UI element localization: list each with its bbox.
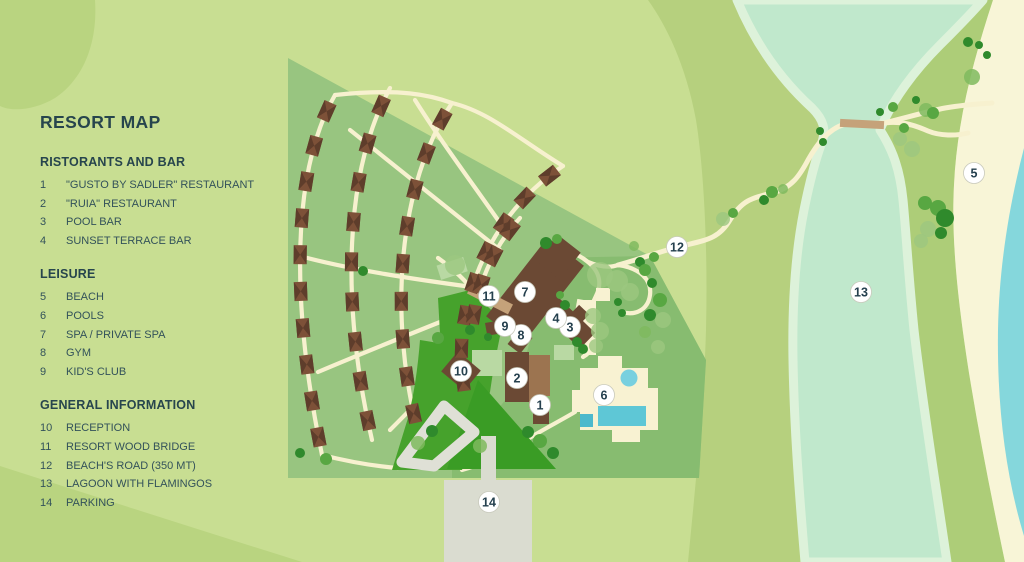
- villa-roof: [295, 208, 309, 228]
- tree: [547, 447, 559, 459]
- svg-text:8: 8: [518, 328, 525, 342]
- legend-item-label: RESORT WOOD BRIDGE: [66, 438, 285, 457]
- legend-item-label: RECEPTION: [66, 419, 285, 438]
- legend-item: 6POOLS: [40, 307, 285, 326]
- legend-item: 14PARKING: [40, 494, 285, 513]
- svg-text:12: 12: [670, 240, 684, 254]
- legend-section-heading: GENERAL INFORMATION: [40, 398, 285, 412]
- tree: [426, 425, 438, 437]
- page-title: RESORT MAP: [40, 112, 285, 133]
- map-marker-1: 1: [530, 395, 551, 416]
- svg-text:9: 9: [502, 319, 509, 333]
- tree: [644, 309, 656, 321]
- legend-item-number: 11: [40, 438, 66, 457]
- legend-item-number: 7: [40, 326, 66, 345]
- main-building: [529, 355, 550, 396]
- svg-text:5: 5: [971, 166, 978, 180]
- legend-item-number: 8: [40, 344, 66, 363]
- villa-roof: [299, 354, 314, 374]
- legend-item-label: GYM: [66, 344, 285, 363]
- map-marker-10: 10: [451, 361, 472, 382]
- legend-item-number: 2: [40, 195, 66, 214]
- resort-map-page: 1234567891011121314 RESORT MAP RISTORANT…: [0, 0, 1024, 562]
- legend-item-number: 3: [40, 213, 66, 232]
- map-marker-6: 6: [594, 385, 615, 406]
- tree: [716, 212, 730, 226]
- tree: [936, 209, 954, 227]
- legend-item-label: LAGOON WITH FLAMINGOS: [66, 475, 285, 494]
- tree: [618, 309, 626, 317]
- tree: [411, 436, 425, 450]
- villa-roof: [345, 252, 358, 271]
- legend-sections: RISTORANTS AND BAR1"GUSTO BY SADLER" RES…: [40, 155, 285, 512]
- legend-item-number: 10: [40, 419, 66, 438]
- legend-panel: RESORT MAP RISTORANTS AND BAR1"GUSTO BY …: [40, 112, 285, 512]
- tree: [964, 69, 980, 85]
- svg-text:11: 11: [482, 289, 495, 303]
- map-marker-13: 13: [851, 282, 872, 303]
- map-marker-9: 9: [495, 316, 516, 337]
- tree: [560, 300, 570, 310]
- tree: [914, 234, 928, 248]
- legend-item-number: 9: [40, 363, 66, 382]
- legend-item: 7SPA / PRIVATE SPA: [40, 326, 285, 345]
- tree: [358, 266, 368, 276]
- legend-item-label: "GUSTO BY SADLER" RESTAURANT: [66, 176, 285, 195]
- tree: [295, 448, 305, 458]
- legend-item-number: 5: [40, 288, 66, 307]
- legend-item-label: BEACH'S ROAD (350 MT): [66, 457, 285, 476]
- map-marker-14: 14: [479, 492, 500, 513]
- tree: [927, 107, 939, 119]
- pool-deck-surface: [572, 356, 658, 442]
- tree: [893, 132, 907, 146]
- svg-text:1: 1: [537, 398, 544, 412]
- tree: [589, 339, 603, 353]
- legend-item-label: SPA / PRIVATE SPA: [66, 326, 285, 345]
- legend-item-label: POOLS: [66, 307, 285, 326]
- tree: [899, 123, 909, 133]
- tree: [484, 333, 492, 341]
- legend-item-label: KID'S CLUB: [66, 363, 285, 382]
- legend-item-label: PARKING: [66, 494, 285, 513]
- tree: [759, 195, 769, 205]
- svg-text:7: 7: [522, 285, 529, 299]
- small-pool: [580, 414, 593, 427]
- legend-item: 9KID'S CLUB: [40, 363, 285, 382]
- villa-roof: [345, 292, 359, 312]
- villa-roof: [346, 212, 361, 232]
- tree: [728, 208, 738, 218]
- map-marker-4: 4: [546, 308, 567, 329]
- tree: [766, 186, 778, 198]
- legend-item: 13LAGOON WITH FLAMINGOS: [40, 475, 285, 494]
- svg-text:13: 13: [854, 285, 868, 299]
- legend-item-label: BEACH: [66, 288, 285, 307]
- tree: [522, 426, 534, 438]
- tree: [819, 138, 827, 146]
- map-marker-12: 12: [667, 237, 688, 258]
- tree: [778, 184, 788, 194]
- pool-pavilion: [596, 288, 610, 301]
- villa-roof: [399, 366, 415, 387]
- tree: [912, 96, 920, 104]
- map-marker-2: 2: [507, 368, 528, 389]
- tree: [320, 453, 332, 465]
- tree: [621, 283, 639, 301]
- legend-item-number: 12: [40, 457, 66, 476]
- tree: [647, 278, 657, 288]
- villa-roof: [455, 339, 469, 358]
- villa-roof: [296, 318, 311, 338]
- legend-item-number: 6: [40, 307, 66, 326]
- villa-roof: [294, 245, 307, 264]
- tree: [432, 332, 444, 344]
- tree: [585, 308, 601, 324]
- svg-text:3: 3: [567, 320, 574, 334]
- tree: [975, 41, 983, 49]
- tree: [876, 108, 884, 116]
- tree: [473, 439, 487, 453]
- tree: [540, 237, 552, 249]
- legend-item: 4SUNSET TERRACE BAR: [40, 232, 285, 251]
- legend-item: 11RESORT WOOD BRIDGE: [40, 438, 285, 457]
- tree: [445, 255, 465, 275]
- legend-item: 2"RUIA" RESTAURANT: [40, 195, 285, 214]
- tree: [963, 37, 973, 47]
- villa-roof: [348, 331, 363, 351]
- map-marker-7: 7: [515, 282, 536, 303]
- legend-item: 12BEACH'S ROAD (350 MT): [40, 457, 285, 476]
- legend-item-number: 14: [40, 494, 66, 513]
- legend-item: 8GYM: [40, 344, 285, 363]
- tree: [552, 234, 562, 244]
- tree: [918, 196, 932, 210]
- legend-item: 5BEACH: [40, 288, 285, 307]
- tree: [904, 141, 920, 157]
- legend-item-number: 4: [40, 232, 66, 251]
- legend-item-label: "RUIA" RESTAURANT: [66, 195, 285, 214]
- main-pool: [598, 406, 646, 426]
- legend-section-heading: LEISURE: [40, 267, 285, 281]
- villa-roof: [396, 254, 410, 274]
- tree: [816, 127, 824, 135]
- round-pool: [621, 370, 638, 387]
- tree: [533, 434, 547, 448]
- legend-item: 3POOL BAR: [40, 213, 285, 232]
- tree: [653, 293, 667, 307]
- legend-item-label: SUNSET TERRACE BAR: [66, 232, 285, 251]
- tree: [639, 264, 651, 276]
- map-marker-5: 5: [964, 163, 985, 184]
- legend-item-label: POOL BAR: [66, 213, 285, 232]
- svg-text:10: 10: [454, 364, 468, 378]
- tree: [629, 241, 639, 251]
- svg-text:14: 14: [482, 495, 496, 509]
- tree: [556, 291, 564, 299]
- legend-item-number: 1: [40, 176, 66, 195]
- tree: [888, 102, 898, 112]
- sage-patch: [554, 345, 574, 360]
- tree: [983, 51, 991, 59]
- tree: [578, 344, 588, 354]
- svg-text:4: 4: [553, 311, 560, 325]
- tree: [649, 252, 659, 262]
- map-marker-11: 11: [479, 286, 500, 307]
- legend-item-number: 13: [40, 475, 66, 494]
- villa-roof: [294, 282, 308, 302]
- tree: [465, 325, 475, 335]
- tree: [935, 227, 947, 239]
- legend-section-heading: RISTORANTS AND BAR: [40, 155, 285, 169]
- legend-item: 10RECEPTION: [40, 419, 285, 438]
- villa-roof: [395, 292, 408, 311]
- tree: [591, 322, 609, 340]
- tree: [651, 340, 665, 354]
- legend-item: 1"GUSTO BY SADLER" RESTAURANT: [40, 176, 285, 195]
- svg-text:2: 2: [514, 371, 521, 385]
- tree: [639, 326, 651, 338]
- tree: [614, 298, 622, 306]
- tree: [655, 312, 671, 328]
- villa-roof: [396, 329, 410, 349]
- svg-text:6: 6: [601, 388, 608, 402]
